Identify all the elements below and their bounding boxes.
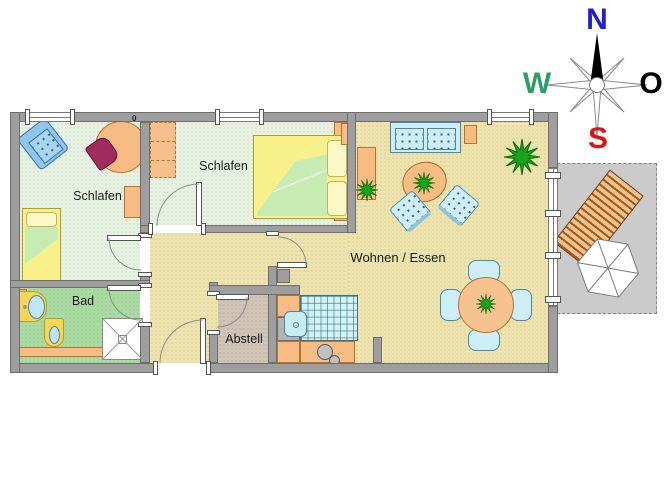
- door-jamb: [206, 361, 211, 375]
- shower-drain: [118, 335, 127, 344]
- bed-pillow: [26, 212, 57, 227]
- glazing-mullion: [545, 172, 561, 179]
- compass-north-label: N: [584, 5, 610, 35]
- sideboard: [357, 147, 376, 200]
- compass-west-label: W: [521, 69, 553, 99]
- toilet-bowl: [49, 326, 60, 344]
- wardrobe-shelf: [151, 141, 175, 142]
- washbasin-tap: [23, 305, 27, 309]
- single-bed: [22, 208, 61, 281]
- compass-spike-sw: [570, 83, 599, 112]
- wall: [268, 266, 277, 363]
- wall: [347, 112, 356, 233]
- wall: [72, 112, 218, 122]
- wall: [140, 322, 150, 363]
- wall: [10, 363, 158, 373]
- window-cap: [25, 109, 30, 125]
- wall: [373, 337, 382, 363]
- compass-east-label: O: [638, 69, 664, 99]
- window: [218, 112, 262, 122]
- sofa-cushion: [427, 128, 456, 150]
- compass-needle-north: [590, 33, 604, 86]
- wall: [548, 306, 558, 373]
- door-jamb: [138, 272, 152, 277]
- glazing-mullion: [545, 210, 561, 217]
- wall: [277, 269, 290, 283]
- level-marker: 0: [132, 114, 136, 123]
- compass-south-label: S: [585, 124, 611, 154]
- window: [490, 112, 532, 122]
- compass-spike-nw: [570, 58, 599, 87]
- room-label-bedroom2: Schlafen: [186, 159, 261, 173]
- door-panel: [196, 182, 202, 226]
- window-cap: [487, 109, 492, 125]
- bath-bench: [17, 347, 103, 357]
- kitchen-sink: [284, 311, 307, 337]
- room-label-living: Wohnen / Essen: [342, 250, 454, 265]
- washbasin: [19, 291, 47, 322]
- door-jamb: [138, 322, 152, 327]
- door-panel: [107, 285, 141, 291]
- kitchen-cabinet: [277, 341, 300, 363]
- sink-drain: [293, 322, 299, 328]
- door-jamb: [266, 231, 279, 236]
- kitchen-tiles: [300, 295, 358, 341]
- door-jamb: [148, 223, 153, 235]
- compass-rose: [547, 33, 647, 136]
- glazing-mullion: [545, 252, 561, 259]
- glazing-mullion: [545, 296, 561, 303]
- room-label-storage: Abstell: [218, 332, 270, 346]
- double-bed: [253, 135, 349, 219]
- window-cap: [529, 109, 534, 125]
- toilet: [44, 318, 64, 347]
- window: [28, 112, 72, 122]
- window-cap: [215, 109, 220, 125]
- dining-table: [458, 277, 514, 333]
- compass-spike-se: [595, 83, 624, 112]
- wall: [548, 112, 558, 168]
- wall: [206, 363, 558, 373]
- door-panel: [277, 262, 307, 268]
- wall: [10, 112, 20, 373]
- floor-plan-page: Schlafen Schlafen Bad Abstell Wohnen / E…: [0, 0, 670, 503]
- wardrobe: [150, 122, 176, 178]
- bed-pillow: [327, 140, 347, 177]
- bed-pillow: [327, 181, 347, 216]
- compass-hub: [590, 78, 605, 93]
- entrance-door-panel: [200, 318, 206, 364]
- door-panel: [107, 235, 141, 241]
- terrace-glazing: [548, 168, 558, 306]
- storage-floor: [218, 295, 268, 363]
- compass-spike-w: [547, 80, 596, 90]
- door-panel: [216, 294, 249, 300]
- sofa-cushion: [395, 128, 424, 150]
- washbasin-bowl: [28, 295, 45, 319]
- side-table: [464, 125, 477, 144]
- wardrobe-shelf: [151, 160, 175, 161]
- window-cap: [70, 109, 75, 125]
- door-jamb: [153, 361, 158, 375]
- compass-spike-ne: [595, 58, 624, 87]
- wall: [262, 112, 490, 122]
- window-cap: [259, 109, 264, 125]
- room-label-bedroom1: Schlafen: [60, 189, 135, 203]
- sofa: [390, 122, 461, 153]
- wall: [140, 122, 150, 238]
- room-label-bath: Bad: [62, 294, 104, 308]
